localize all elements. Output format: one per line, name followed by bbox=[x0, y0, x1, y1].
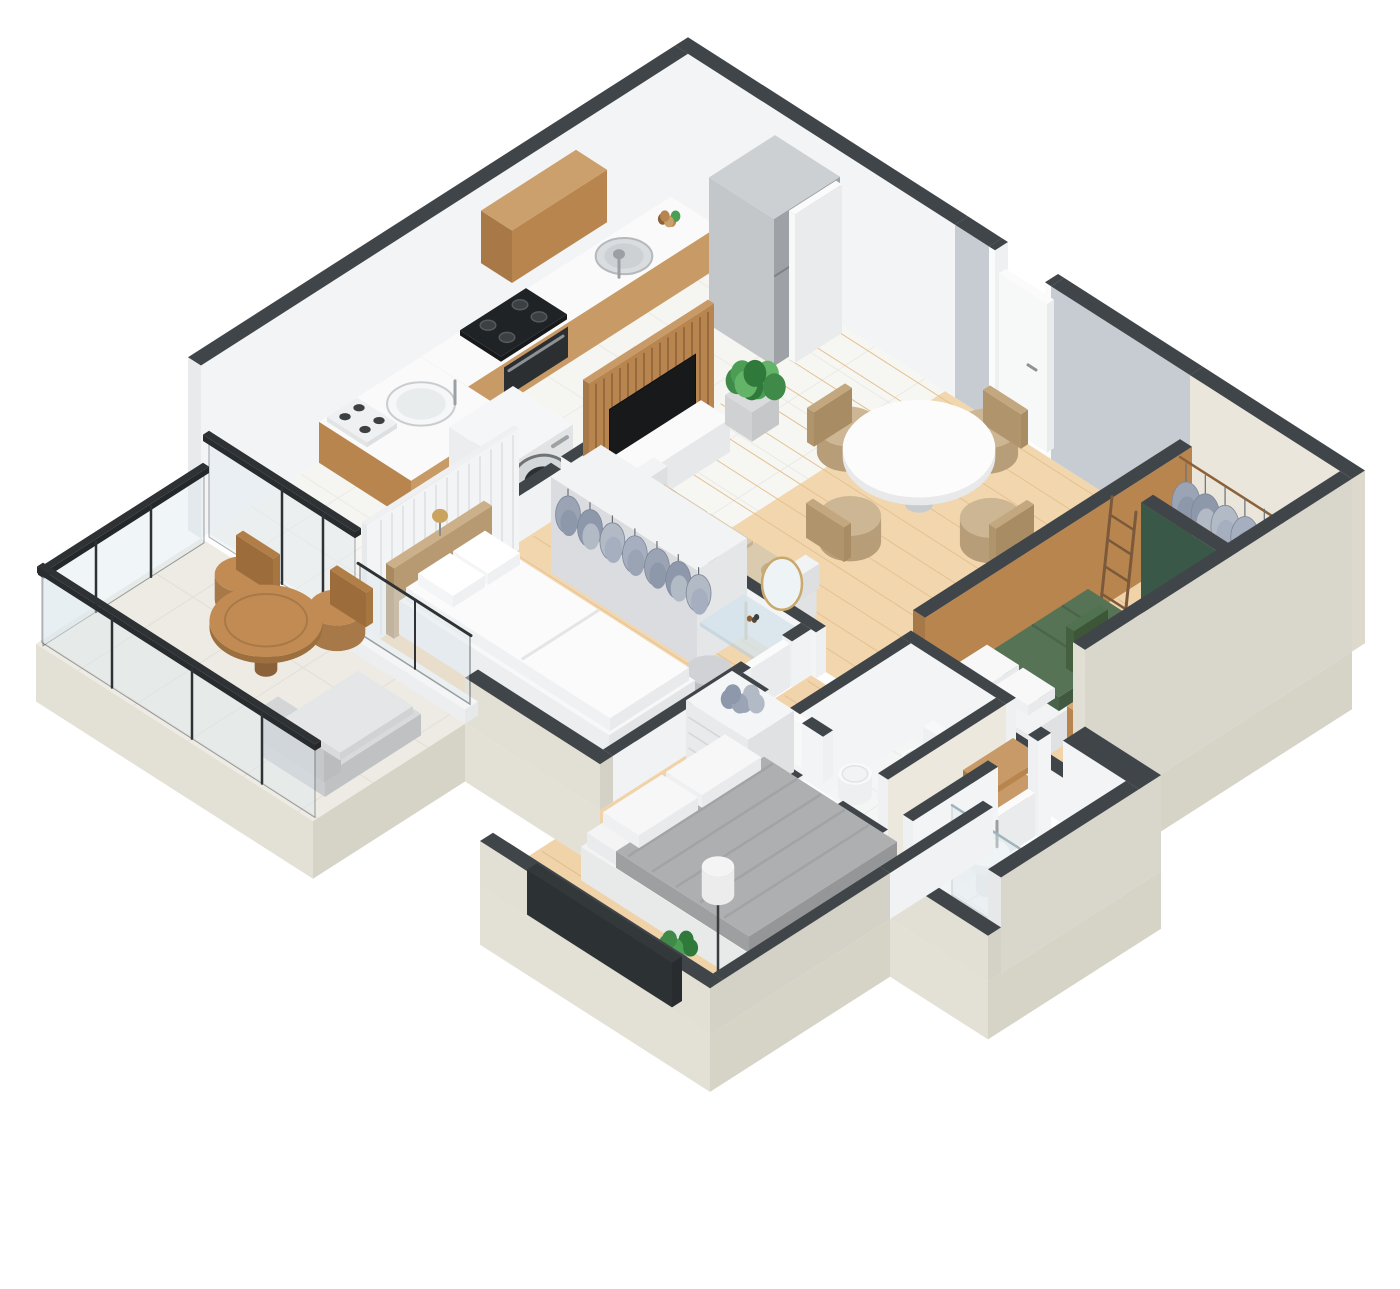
laundry-burner-4 bbox=[359, 426, 370, 433]
laundry-sink-basin bbox=[396, 388, 445, 420]
vanity-mirror bbox=[762, 558, 802, 610]
laundry-burner-3 bbox=[339, 413, 350, 420]
floor-lamp-shade bbox=[702, 856, 735, 905]
kitchen-burner-4 bbox=[499, 332, 515, 342]
kitchen-burner-2 bbox=[531, 312, 547, 322]
floor-plan-render bbox=[0, 0, 1400, 1289]
kitchen-faucet-head bbox=[613, 249, 625, 259]
kitchen-burner-1 bbox=[512, 300, 528, 310]
kitchen-door bbox=[789, 181, 842, 363]
floor-plan-canvas bbox=[0, 0, 1400, 1289]
bidet1-top bbox=[842, 766, 867, 782]
laundry-burner-1 bbox=[353, 404, 364, 411]
bed2-lamp bbox=[432, 509, 448, 523]
dining-table bbox=[843, 400, 996, 505]
kitchen-burner-3 bbox=[480, 320, 496, 330]
laundry-burner-2 bbox=[373, 417, 384, 424]
